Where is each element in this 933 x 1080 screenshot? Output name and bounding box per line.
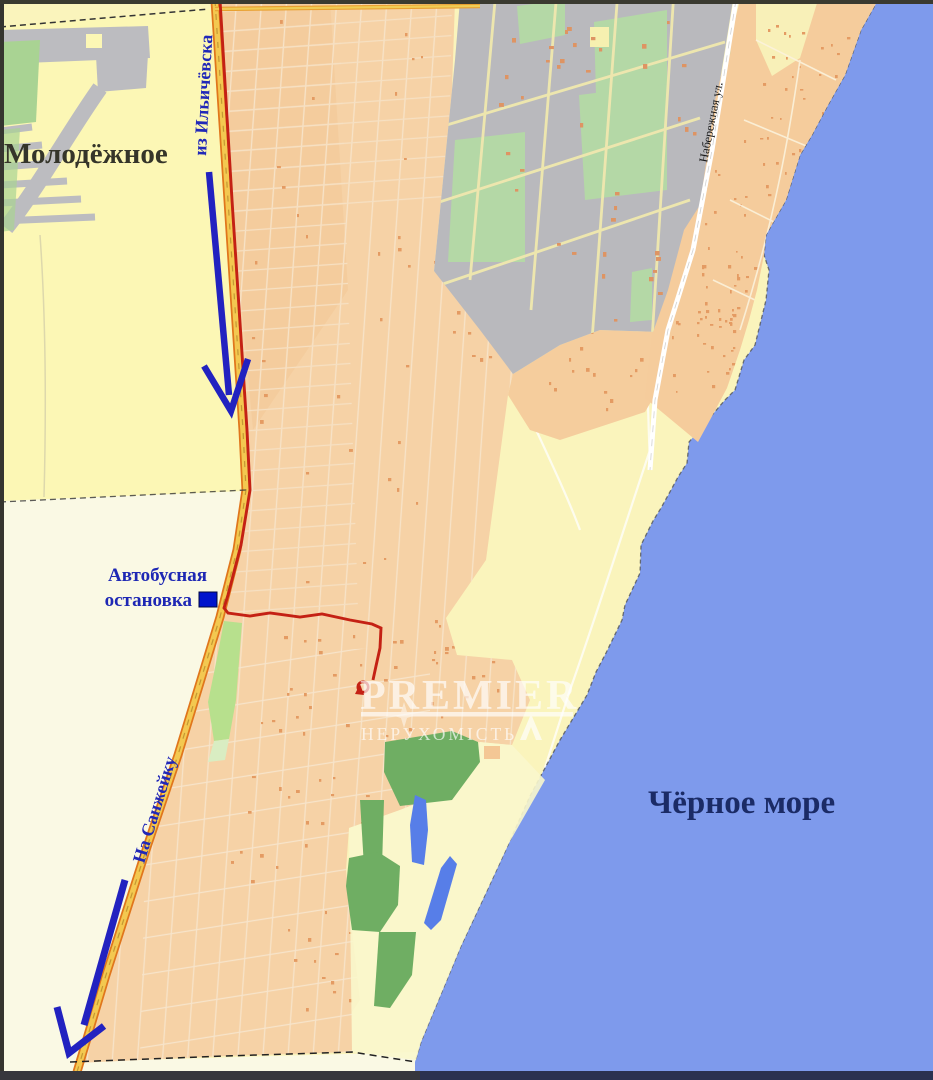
svg-text:остановка: остановка — [105, 590, 193, 611]
svg-text:Автобусная: Автобусная — [108, 565, 207, 586]
svg-text:Чёрное море: Чёрное море — [648, 785, 835, 821]
svg-text:Молодёжное: Молодёжное — [4, 138, 168, 170]
svg-text:НЕРУХОМІСТЬ: НЕРУХОМІСТЬ — [361, 724, 517, 744]
